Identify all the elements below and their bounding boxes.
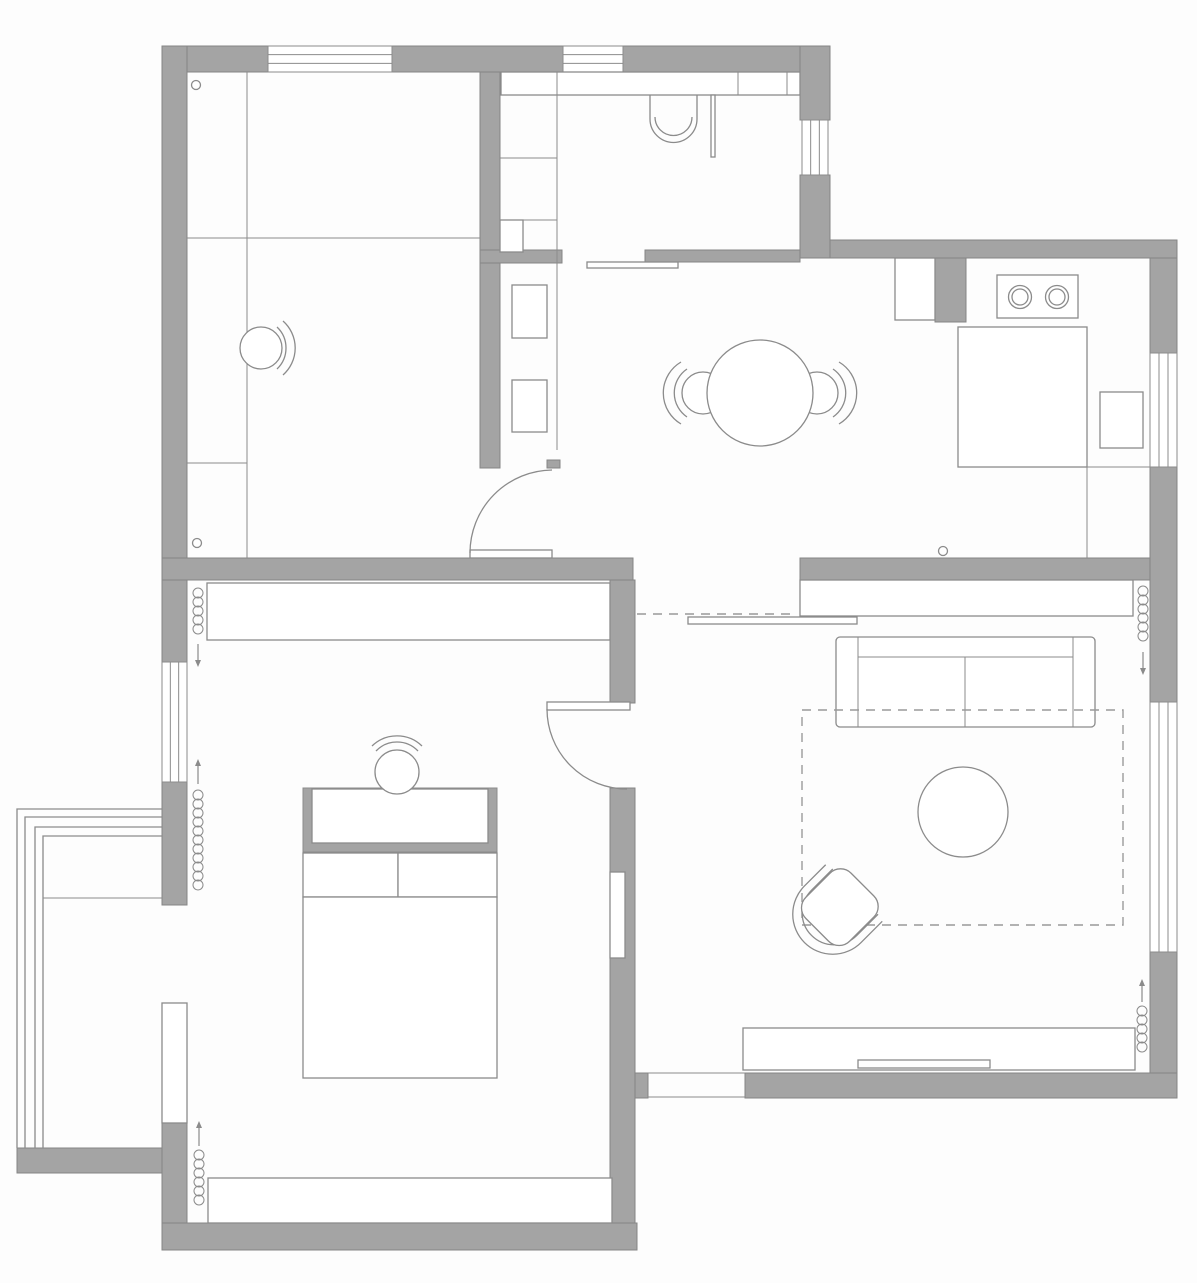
bedroom-left-wall-b <box>162 782 187 905</box>
dining-chair-left-back-outer <box>663 362 681 424</box>
bedroom-right-wall-a <box>610 580 635 703</box>
room1-right-wall <box>480 72 500 468</box>
tv-unit <box>858 1060 990 1068</box>
door-stop-kitchen <box>939 547 948 556</box>
room1-chair-back-outer <box>283 321 295 375</box>
south-band-west <box>162 558 633 580</box>
door-stop-room1 <box>192 81 201 90</box>
burner-left-inner <box>1012 289 1028 305</box>
radiator-arrow-living-lower-head <box>1139 979 1145 986</box>
radiator-arrow-bedroom-mid-head <box>195 759 201 766</box>
kitchen-appliance <box>1100 392 1143 448</box>
pillow-left <box>303 853 398 897</box>
right-wall-kitchen-upper <box>1150 258 1177 353</box>
bedroom-left-wall-a <box>162 580 187 662</box>
bathroom-right-wall-lower <box>800 175 830 258</box>
room1-chair-seat <box>240 327 282 369</box>
left-wall-upper <box>162 46 187 558</box>
vanity-desktop <box>312 789 488 843</box>
floor-plan-page <box>0 0 1197 1283</box>
balcony-rail-4 <box>43 836 162 1148</box>
room1-door-swing <box>470 470 552 553</box>
toilet-seat-arc <box>655 117 692 136</box>
bedroom-right-wall-b <box>610 788 635 1223</box>
window-bedroom <box>162 662 187 782</box>
burner-right-inner <box>1049 289 1065 305</box>
balcony-rail-3 <box>35 827 162 1148</box>
kitchen-north-wall <box>830 240 1177 258</box>
bedroom-window-seat <box>208 1178 612 1223</box>
armchair-seat <box>795 863 884 952</box>
window-top-2 <box>563 46 623 72</box>
bedroom-door-leaf <box>547 702 630 710</box>
south-band-east <box>800 558 1150 580</box>
bathroom-right-wall-upper <box>800 46 830 120</box>
wall-niche <box>610 872 625 958</box>
top-wall-mid <box>392 46 563 72</box>
balcony-rail-2 <box>25 817 162 1148</box>
vanity-stool-back-outer <box>372 736 422 746</box>
bathroom-top-cabinet <box>501 72 800 95</box>
bathroom-bottom-wall <box>645 250 800 262</box>
living-north-cabinet <box>800 580 1133 616</box>
bedroom-bottom-wall <box>162 1223 637 1250</box>
window-top-1 <box>268 46 392 72</box>
window-bathroom <box>802 120 828 175</box>
balcony-bottom-band <box>17 1148 162 1173</box>
pillow-right <box>398 853 497 897</box>
shower-glass-panel <box>711 95 715 157</box>
kitchen-counter-big <box>958 327 1087 467</box>
coffee-table <box>918 767 1008 857</box>
kitchen-counter-small <box>895 258 935 320</box>
bedroom-left-wall-c <box>162 1123 187 1223</box>
hall-drawer-1 <box>512 285 547 338</box>
radiator-arrow-bedroom-upper-head <box>195 660 201 667</box>
bedroom-wardrobe <box>207 583 610 640</box>
window-living <box>1150 702 1177 952</box>
bedroom-door-swing <box>547 709 627 789</box>
living-bottom-wall <box>745 1073 1177 1098</box>
dining-chair-right-back-outer <box>839 362 857 424</box>
living-sliding-door <box>688 617 857 624</box>
radiator-arrow-living-upper-head <box>1140 668 1146 675</box>
bathroom-sliding-door <box>587 262 678 268</box>
door-stop-room1-south <box>193 539 202 548</box>
room1-door-leaf <box>470 550 552 558</box>
floor-plan-canvas <box>0 0 1197 1283</box>
top-wall-right <box>623 46 830 72</box>
balcony-rail-1 <box>17 809 162 1148</box>
bedroom-right-wall-stub <box>635 1073 648 1098</box>
dining-table <box>707 340 813 446</box>
radiator-arrow-bedroom-lower-head <box>196 1121 202 1128</box>
kitchen-pillar <box>935 258 966 322</box>
vanity-stool <box>375 750 419 794</box>
bed <box>303 897 497 1078</box>
right-wall-kitchen-lower <box>1150 467 1177 702</box>
vestibule-wall-stub <box>547 460 560 468</box>
hall-drawer-2 <box>512 380 547 432</box>
balcony-door-panel <box>162 1003 187 1123</box>
vanity-step <box>500 220 523 252</box>
window-kitchen <box>1150 353 1177 467</box>
